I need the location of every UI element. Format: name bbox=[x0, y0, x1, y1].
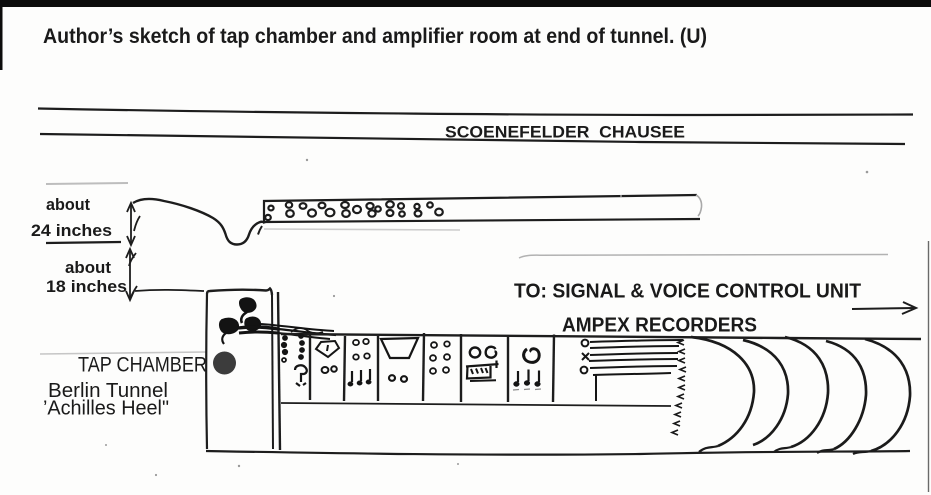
svg-text:TO: SIGNAL & VOICE CONTROL UNI: TO: SIGNAL & VOICE CONTROL UNIT bbox=[514, 281, 861, 303]
svg-text:about: about bbox=[46, 195, 90, 214]
svg-text:SCOENEFELDER CHAUSEE: SCOENEFELDER CHAUSEE bbox=[445, 123, 685, 142]
svg-text:24 inches: 24 inches bbox=[31, 221, 112, 240]
svg-text:AMPEX RECORDERS: AMPEX RECORDERS bbox=[562, 315, 757, 337]
svg-text:TAP CHAMBER: TAP CHAMBER bbox=[78, 354, 207, 377]
svg-text:’Achilles Heel": ’Achilles Heel" bbox=[43, 398, 169, 420]
svg-text:18 inches: 18 inches bbox=[46, 277, 127, 296]
svg-text:about: about bbox=[65, 258, 111, 277]
svg-text:Author’s sketch of tap chamber: Author’s sketch of tap chamber and ampli… bbox=[43, 25, 707, 48]
